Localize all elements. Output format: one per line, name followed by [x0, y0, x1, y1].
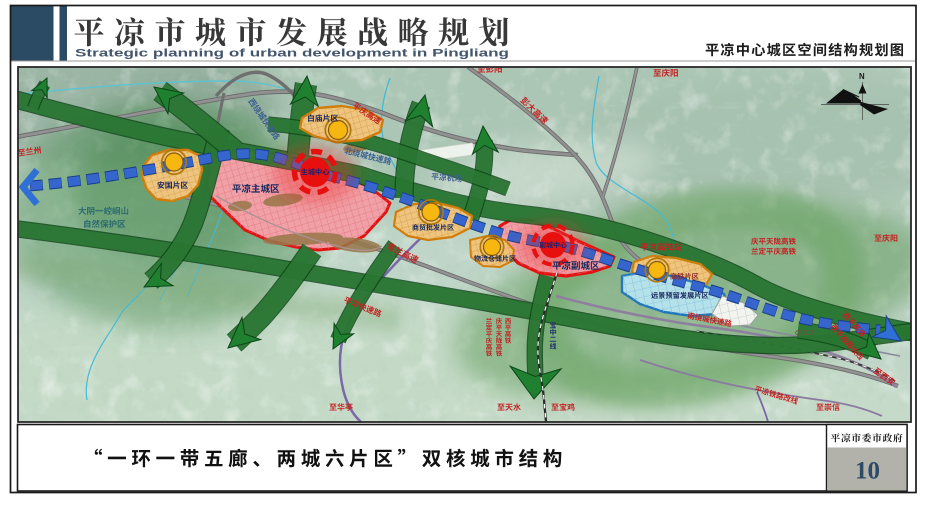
svg-text:10: 10: [855, 458, 880, 485]
svg-text:Strategic planning of urban de: Strategic planning of urban development …: [75, 48, 509, 60]
svg-text:G312: G312: [795, 328, 814, 337]
svg-text:N: N: [859, 72, 865, 81]
